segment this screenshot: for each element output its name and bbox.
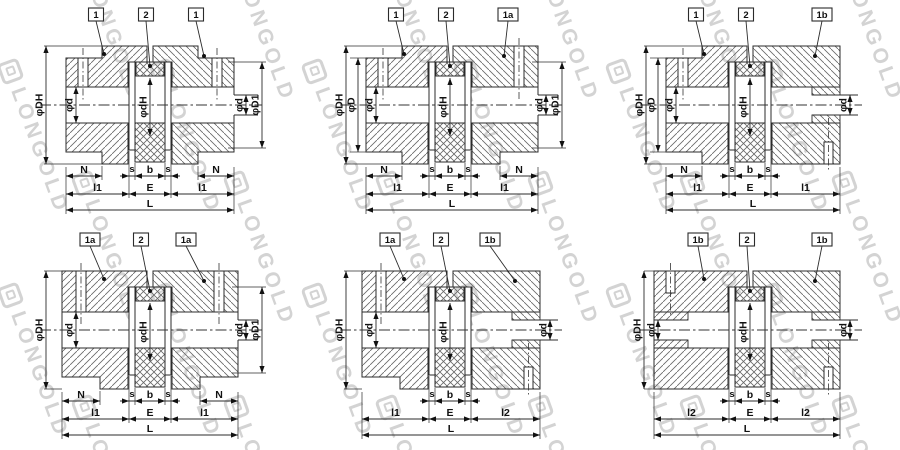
callout-label: 2 xyxy=(443,10,448,21)
dim-label: φdH xyxy=(438,321,450,343)
dim-label: E xyxy=(746,407,753,419)
callout-label: 2 xyxy=(744,235,749,246)
dim-label: b xyxy=(747,389,753,401)
diagram-top-middle: φDHφDφdφdHφdφD1NNsbsl1El1L121a xyxy=(300,0,600,225)
dim-label: φD1 xyxy=(250,94,262,115)
dim-label: φDH xyxy=(634,94,646,117)
dim-label: φDH xyxy=(34,319,46,342)
callout-label: 1 xyxy=(693,10,699,21)
dim-label: b xyxy=(447,389,453,401)
dim-label: φD1 xyxy=(550,94,562,115)
dim-label: φd xyxy=(64,98,76,112)
dim-label: E xyxy=(146,182,153,194)
dim-label: L xyxy=(449,198,456,210)
drawing-sheet: LONGOLDLONGOLDLONGOLDLONGOLDLONGOLDLONGO… xyxy=(0,0,900,450)
dim-label: s xyxy=(465,389,470,400)
dim-label: b xyxy=(447,164,453,176)
dim-label: s xyxy=(765,164,770,175)
callout-label: 1a xyxy=(181,235,192,246)
dim-label: b xyxy=(747,164,753,176)
dim-label: s xyxy=(465,164,470,175)
dim-label: φD1 xyxy=(250,319,262,340)
dim-label: E xyxy=(446,407,453,419)
dim-label: φD xyxy=(346,97,358,113)
dim-label: φd xyxy=(234,323,246,337)
dim-label: φd xyxy=(64,323,76,337)
dim-label: s xyxy=(129,389,134,400)
dim-label: E xyxy=(746,182,753,194)
callout-label: 2 xyxy=(143,10,148,21)
dim-label: φdH xyxy=(138,96,150,118)
dim-label: s xyxy=(129,164,134,175)
dim-label: φd xyxy=(538,323,550,337)
dim-label: φDH xyxy=(334,94,346,117)
dim-label: N xyxy=(515,164,523,176)
dim-label: l2 xyxy=(801,407,810,419)
callout-label: 1b xyxy=(484,235,495,246)
callout-label: 1b xyxy=(692,235,703,246)
dim-label: φd xyxy=(838,323,850,337)
dim-label: l1 xyxy=(393,182,402,194)
dim-label: φd xyxy=(234,98,246,112)
callout-label: 1a xyxy=(85,235,96,246)
dim-label: N xyxy=(212,164,220,176)
dim-label: L xyxy=(448,423,455,435)
dim-label: N xyxy=(77,389,85,401)
dim-label: φd xyxy=(364,323,376,337)
dim-label: N xyxy=(380,164,388,176)
dim-label: φd xyxy=(364,98,376,112)
diagram-grid: φDHφdφdHφdφD1NNsbsl1El1L121φDHφDφdφdHφdφ… xyxy=(0,0,900,450)
dim-label: φd xyxy=(534,98,546,112)
dim-label: φd xyxy=(838,98,850,112)
dim-label: φdH xyxy=(738,96,750,118)
dim-label: l2 xyxy=(687,407,696,419)
callout-label: 1b xyxy=(816,10,827,21)
diagram-top-right: φDHφDφdφdHφdNsbsl1El1L121b xyxy=(600,0,900,225)
callout-label: 1 xyxy=(93,10,99,21)
callout-label: 1 xyxy=(393,10,399,21)
dim-label: s xyxy=(765,389,770,400)
dim-label: N xyxy=(80,164,88,176)
dim-label: φdH xyxy=(438,96,450,118)
dim-label: E xyxy=(446,182,453,194)
dim-label: s xyxy=(429,389,434,400)
dim-label: φdH xyxy=(738,321,750,343)
callout-label: 1a xyxy=(385,235,396,246)
dim-label: b xyxy=(147,389,153,401)
dim-label: E xyxy=(146,407,153,419)
diagram-top-left: φDHφdφdHφdφD1NNsbsl1El1L121 xyxy=(0,0,300,225)
dim-label: l1 xyxy=(93,182,102,194)
dim-label: l1 xyxy=(500,182,509,194)
dim-label: s xyxy=(429,164,434,175)
dim-label: L xyxy=(147,198,154,210)
dim-label: φd xyxy=(646,323,658,337)
dim-label: L xyxy=(744,423,751,435)
dim-label: l1 xyxy=(200,407,209,419)
callout-label: 1a xyxy=(503,10,514,21)
diagram-bottom-left: φDHφdφdHφdφD1NNsbsl1El1L1a21a xyxy=(0,225,300,450)
dim-label: l2 xyxy=(501,407,510,419)
dim-label: l1 xyxy=(693,182,702,194)
dim-label: φDH xyxy=(334,319,346,342)
coupling-body xyxy=(640,263,862,397)
dim-label: b xyxy=(147,164,153,176)
callout-label: 1b xyxy=(816,235,827,246)
dim-label: φD xyxy=(646,97,658,113)
callout-label: 2 xyxy=(438,235,443,246)
dim-label: L xyxy=(147,423,154,435)
dim-label: s xyxy=(729,389,734,400)
dim-label: s xyxy=(729,164,734,175)
dim-label: l1 xyxy=(198,182,207,194)
dim-label: L xyxy=(750,198,757,210)
dim-label: s xyxy=(165,389,170,400)
dim-label: N xyxy=(215,389,223,401)
dim-label: φDH xyxy=(632,319,644,342)
callout-label: 1 xyxy=(193,10,199,21)
diagram-bottom-middle: φDHφdφdHφdsbsl1El2L1a21b xyxy=(300,225,600,450)
dim-label: φdH xyxy=(138,321,150,343)
dim-label: φd xyxy=(664,98,676,112)
dim-label: s xyxy=(165,164,170,175)
dim-label: N xyxy=(680,164,688,176)
dim-label: φDH xyxy=(34,94,46,117)
dim-label: l1 xyxy=(801,182,810,194)
callout-label: 2 xyxy=(743,10,748,21)
callout-label: 2 xyxy=(138,235,143,246)
diagram-bottom-right: φDHφdφdHφdsbsl2El2L1b21b xyxy=(600,225,900,450)
dim-label: l1 xyxy=(391,407,400,419)
dim-label: l1 xyxy=(91,407,100,419)
